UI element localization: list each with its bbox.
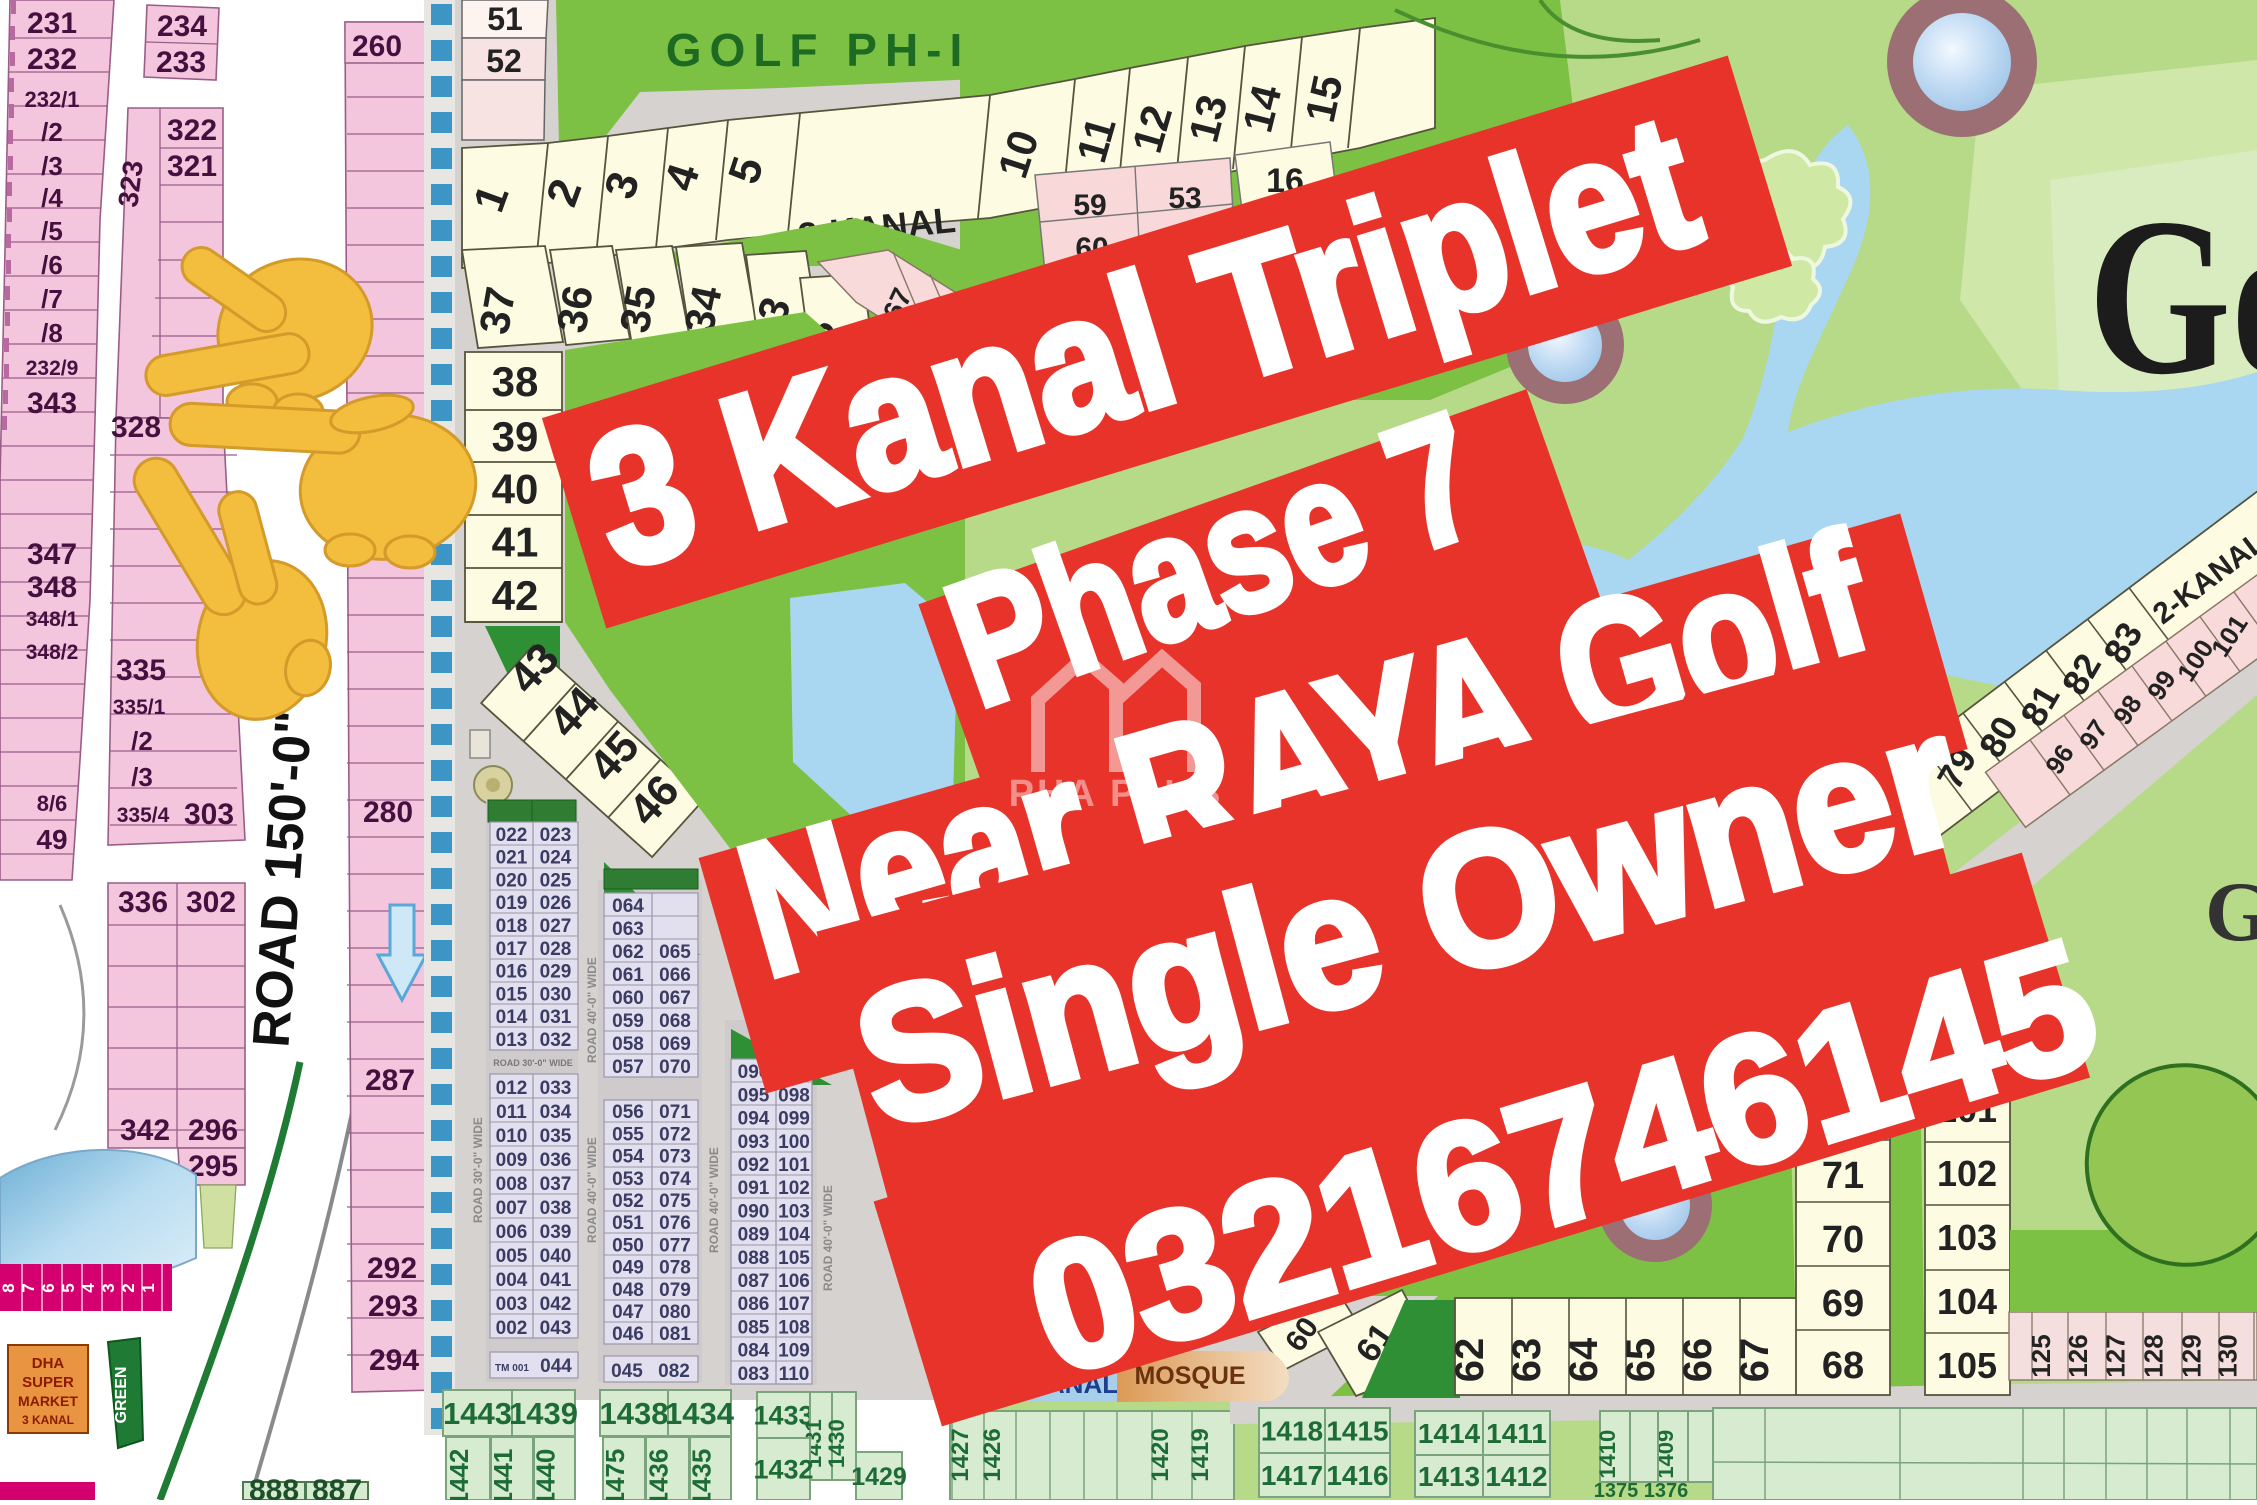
svg-text:1439: 1439 (509, 1396, 578, 1431)
svg-text:130: 130 (2213, 1334, 2243, 1377)
svg-text:335: 335 (116, 654, 166, 687)
svg-text:045: 045 (611, 1361, 643, 1382)
svg-text:046: 046 (612, 1324, 644, 1345)
svg-text:342: 342 (120, 1114, 170, 1147)
svg-text:082: 082 (658, 1361, 690, 1382)
svg-text:048: 048 (612, 1280, 644, 1301)
svg-text:084: 084 (738, 1341, 770, 1362)
svg-text:1427: 1427 (947, 1428, 974, 1481)
svg-text:1415: 1415 (1326, 1415, 1388, 1446)
svg-text:056: 056 (612, 1102, 644, 1123)
svg-text:347: 347 (27, 538, 77, 571)
svg-text:080: 080 (659, 1302, 691, 1323)
svg-text:/8: /8 (41, 318, 63, 348)
svg-text:020: 020 (496, 870, 528, 891)
svg-text:1429: 1429 (851, 1463, 907, 1491)
svg-text:8: 8 (0, 1283, 18, 1292)
svg-text:109: 109 (778, 1341, 810, 1362)
svg-text:260: 260 (352, 30, 402, 63)
svg-text:1417: 1417 (1261, 1460, 1323, 1491)
svg-text:232: 232 (27, 43, 77, 76)
svg-text:126: 126 (2063, 1334, 2093, 1377)
svg-text:1441: 1441 (488, 1449, 518, 1500)
svg-text:336: 336 (118, 886, 168, 919)
svg-text:085: 085 (738, 1317, 770, 1338)
svg-text:PHA PLUS: PHA PLUS (1009, 773, 1224, 815)
svg-text:42: 42 (492, 572, 539, 619)
svg-text:103: 103 (778, 1201, 810, 1222)
svg-text:335/1: 335/1 (113, 696, 166, 719)
svg-text:051: 051 (612, 1213, 644, 1234)
svg-text:033: 033 (540, 1078, 572, 1099)
svg-text:100: 100 (778, 1132, 810, 1153)
svg-text:322: 322 (167, 114, 217, 147)
svg-text:025: 025 (540, 870, 572, 891)
svg-text:49: 49 (36, 824, 67, 855)
svg-text:1420: 1420 (1147, 1428, 1174, 1481)
svg-text:093: 093 (738, 1132, 770, 1153)
svg-text:292: 292 (367, 1252, 417, 1285)
svg-text:ROAD 40'-0" WIDE: ROAD 40'-0" WIDE (585, 957, 599, 1063)
svg-text:017: 017 (496, 939, 528, 960)
svg-text:022: 022 (496, 825, 528, 846)
svg-text:078: 078 (659, 1258, 691, 1279)
svg-text:40: 40 (492, 466, 539, 513)
svg-text:072: 072 (659, 1124, 691, 1145)
svg-text:887: 887 (312, 1474, 362, 1500)
svg-text:081: 081 (659, 1324, 691, 1345)
svg-text:65: 65 (1619, 1338, 1663, 1383)
svg-text:ROAD 40'-0" WIDE: ROAD 40'-0" WIDE (707, 1147, 721, 1253)
svg-text:1475: 1475 (600, 1449, 630, 1500)
svg-text:MARKET: MARKET (18, 1393, 78, 1409)
svg-text:021: 021 (496, 848, 528, 869)
svg-text:105: 105 (1937, 1345, 1997, 1386)
svg-text:41: 41 (492, 519, 539, 566)
svg-text:1430: 1430 (824, 1419, 849, 1468)
svg-text:087: 087 (738, 1271, 770, 1292)
svg-text:1434: 1434 (665, 1396, 735, 1431)
svg-text:59: 59 (1073, 189, 1106, 222)
svg-text:010: 010 (496, 1126, 528, 1147)
svg-text:028: 028 (540, 939, 572, 960)
svg-text:69: 69 (1822, 1283, 1864, 1325)
svg-text:62: 62 (1448, 1338, 1492, 1383)
svg-text:293: 293 (368, 1290, 418, 1323)
svg-text:4: 4 (79, 1283, 98, 1293)
svg-text:15: 15 (1296, 71, 1352, 126)
svg-text:53: 53 (1168, 182, 1201, 215)
svg-text:38: 38 (492, 358, 539, 405)
svg-text:1411: 1411 (1486, 1418, 1547, 1449)
svg-text:5: 5 (59, 1283, 78, 1292)
svg-text:39: 39 (492, 413, 539, 460)
svg-text:1426: 1426 (979, 1428, 1006, 1481)
svg-text:/5: /5 (41, 216, 63, 246)
svg-text:036: 036 (540, 1150, 572, 1171)
svg-text:SUPER: SUPER (22, 1374, 74, 1391)
svg-text:091: 091 (738, 1178, 770, 1199)
svg-text:1: 1 (139, 1283, 158, 1292)
svg-text:003: 003 (496, 1294, 528, 1315)
svg-text:1412: 1412 (1485, 1461, 1547, 1492)
svg-text:1419: 1419 (1187, 1428, 1214, 1481)
svg-text:8/6: 8/6 (37, 791, 68, 816)
svg-text:1414: 1414 (1418, 1418, 1481, 1449)
svg-text:35: 35 (611, 282, 665, 336)
svg-text:061: 061 (612, 965, 644, 986)
svg-text:071: 071 (659, 1102, 691, 1123)
svg-text:103: 103 (1937, 1217, 1997, 1258)
svg-text:066: 066 (659, 965, 691, 986)
svg-text:1435: 1435 (687, 1449, 717, 1500)
svg-text:1443: 1443 (443, 1396, 512, 1431)
svg-text:GOLF PH-I: GOLF PH-I (666, 24, 971, 76)
svg-text:/6: /6 (41, 250, 63, 280)
svg-text:038: 038 (540, 1198, 572, 1219)
svg-text:042: 042 (540, 1294, 572, 1315)
svg-text:G: G (2205, 865, 2257, 959)
svg-text:110: 110 (779, 1364, 810, 1385)
svg-text:004: 004 (496, 1270, 528, 1291)
svg-text:062: 062 (612, 942, 644, 963)
svg-text:/2: /2 (41, 117, 63, 147)
svg-text:280: 280 (363, 796, 413, 829)
svg-text:014: 014 (496, 1007, 528, 1028)
svg-text:104: 104 (1937, 1281, 1997, 1322)
svg-text:ROAD 40'-0" WIDE: ROAD 40'-0" WIDE (821, 1185, 835, 1291)
svg-text:063: 063 (612, 919, 644, 940)
svg-text:128: 128 (2139, 1334, 2169, 1377)
svg-text:3: 3 (99, 1283, 118, 1292)
svg-text:075: 075 (659, 1191, 691, 1212)
svg-text:67: 67 (1733, 1338, 1777, 1383)
svg-text:050: 050 (612, 1235, 644, 1256)
svg-text:026: 026 (540, 893, 572, 914)
svg-text:/2: /2 (131, 726, 153, 756)
svg-text:ROAD 30'-0" WIDE: ROAD 30'-0" WIDE (493, 1058, 572, 1068)
svg-text:231: 231 (27, 7, 77, 40)
svg-text:1440: 1440 (531, 1449, 561, 1500)
svg-text:232/9: 232/9 (26, 357, 79, 380)
svg-text:092: 092 (738, 1155, 770, 1176)
svg-text:044: 044 (540, 1356, 572, 1377)
svg-text:041: 041 (540, 1270, 572, 1291)
svg-text:64: 64 (1562, 1337, 1606, 1382)
svg-text:077: 077 (659, 1235, 691, 1256)
svg-text:076: 076 (659, 1213, 691, 1234)
svg-text:018: 018 (496, 916, 528, 937)
svg-text:060: 060 (612, 988, 644, 1009)
svg-text:053: 053 (612, 1169, 644, 1190)
svg-text:/7: /7 (41, 284, 63, 314)
svg-text:101: 101 (778, 1155, 810, 1176)
svg-text:Go: Go (2088, 171, 2257, 421)
svg-text:102: 102 (1937, 1153, 1997, 1194)
svg-text:039: 039 (540, 1222, 572, 1243)
svg-text:232/1: 232/1 (24, 87, 79, 112)
svg-text:074: 074 (659, 1169, 691, 1190)
svg-text:/3: /3 (131, 762, 153, 792)
svg-text:011: 011 (496, 1102, 527, 1123)
svg-text:086: 086 (738, 1294, 770, 1315)
svg-text:296: 296 (188, 1114, 238, 1147)
svg-text:/3: /3 (41, 151, 63, 181)
svg-text:088: 088 (738, 1248, 770, 1269)
svg-text:233: 233 (156, 46, 206, 79)
svg-text:1375 1376: 1375 1376 (1594, 1480, 1689, 1500)
svg-text:069: 069 (659, 1034, 691, 1055)
svg-text:129: 129 (2177, 1334, 2207, 1377)
svg-text:/4: /4 (41, 183, 63, 213)
svg-text:006: 006 (496, 1222, 528, 1243)
svg-text:1432: 1432 (753, 1454, 813, 1484)
svg-text:059: 059 (612, 1011, 644, 1032)
svg-text:125: 125 (2026, 1334, 2056, 1377)
svg-text:888: 888 (249, 1474, 299, 1500)
svg-text:019: 019 (496, 893, 528, 914)
svg-text:037: 037 (540, 1174, 572, 1195)
svg-text:66: 66 (1676, 1338, 1720, 1383)
svg-text:1410: 1410 (1595, 1430, 1620, 1479)
svg-text:070: 070 (659, 1057, 691, 1078)
svg-text:040: 040 (540, 1246, 572, 1267)
svg-text:127: 127 (2101, 1334, 2131, 1377)
svg-text:105: 105 (778, 1248, 810, 1269)
svg-text:348: 348 (27, 571, 77, 604)
svg-text:ROAD 30'-0" WIDE: ROAD 30'-0" WIDE (471, 1117, 485, 1223)
svg-text:GREEN: GREEN (113, 1367, 130, 1424)
svg-text:ROAD 40'-0" WIDE: ROAD 40'-0" WIDE (585, 1137, 599, 1243)
svg-text:002: 002 (496, 1318, 528, 1339)
svg-text:1416: 1416 (1326, 1460, 1388, 1491)
svg-text:303: 303 (184, 798, 234, 831)
svg-text:032: 032 (540, 1030, 572, 1051)
svg-text:067: 067 (659, 988, 691, 1009)
svg-text:013: 013 (496, 1030, 528, 1051)
svg-text:055: 055 (612, 1124, 644, 1145)
svg-text:36: 36 (548, 282, 602, 336)
svg-text:51: 51 (487, 1, 523, 37)
svg-text:287: 287 (365, 1064, 415, 1097)
svg-text:068: 068 (659, 1011, 691, 1032)
svg-text:079: 079 (659, 1280, 691, 1301)
svg-text:043: 043 (540, 1318, 572, 1339)
svg-text:70: 70 (1822, 1219, 1864, 1261)
svg-text:012: 012 (496, 1078, 528, 1099)
svg-text:027: 027 (540, 916, 572, 937)
svg-text:1442: 1442 (444, 1449, 474, 1500)
svg-text:294: 294 (369, 1344, 419, 1377)
svg-text:104: 104 (778, 1225, 810, 1246)
svg-text:234: 234 (157, 10, 207, 43)
svg-text:057: 057 (612, 1057, 644, 1078)
svg-text:6: 6 (39, 1283, 58, 1292)
svg-text:023: 023 (540, 825, 572, 846)
svg-text:107: 107 (778, 1294, 810, 1315)
svg-text:016: 016 (496, 962, 528, 983)
svg-text:035: 035 (540, 1126, 572, 1147)
svg-text:049: 049 (612, 1258, 644, 1279)
svg-text:2: 2 (119, 1283, 138, 1292)
svg-text:37: 37 (470, 283, 524, 337)
svg-text:015: 015 (496, 984, 528, 1005)
svg-text:064: 064 (612, 896, 644, 917)
svg-text:005: 005 (496, 1246, 528, 1267)
svg-text:094: 094 (738, 1109, 770, 1130)
svg-text:52: 52 (486, 43, 522, 79)
svg-text:1438: 1438 (600, 1396, 669, 1431)
svg-text:073: 073 (659, 1147, 691, 1168)
svg-text:63: 63 (1505, 1338, 1549, 1383)
svg-text:058: 058 (612, 1034, 644, 1055)
svg-text:343: 343 (27, 387, 77, 420)
svg-text:034: 034 (540, 1102, 572, 1123)
svg-text:052: 052 (612, 1191, 644, 1212)
svg-text:054: 054 (612, 1147, 644, 1168)
svg-text:TM 001: TM 001 (495, 1363, 529, 1374)
svg-text:323: 323 (112, 159, 148, 209)
svg-text:108: 108 (778, 1317, 810, 1338)
svg-text:348/2: 348/2 (26, 641, 79, 664)
svg-text:031: 031 (540, 1007, 572, 1028)
svg-text:089: 089 (738, 1225, 770, 1246)
svg-text:009: 009 (496, 1150, 528, 1171)
svg-text:106: 106 (778, 1271, 810, 1292)
svg-text:1418: 1418 (1261, 1415, 1323, 1446)
svg-text:083: 083 (738, 1364, 770, 1385)
svg-text:1436: 1436 (644, 1449, 674, 1500)
svg-text:029: 029 (540, 962, 572, 983)
svg-text:302: 302 (186, 886, 236, 919)
svg-text:68: 68 (1822, 1345, 1864, 1387)
svg-text:007: 007 (496, 1198, 528, 1219)
svg-text:1413: 1413 (1418, 1461, 1480, 1492)
svg-text:7: 7 (19, 1283, 38, 1292)
svg-text:3 KANAL: 3 KANAL (22, 1413, 74, 1427)
svg-text:030: 030 (540, 984, 572, 1005)
svg-text:102: 102 (778, 1178, 810, 1199)
svg-text:047: 047 (612, 1302, 644, 1323)
svg-text:DHA: DHA (32, 1355, 65, 1372)
svg-text:335/4: 335/4 (117, 804, 170, 827)
svg-text:065: 065 (659, 942, 691, 963)
svg-text:099: 099 (778, 1109, 810, 1130)
svg-text:348/1: 348/1 (26, 608, 79, 631)
svg-text:321: 321 (167, 150, 217, 183)
svg-text:328: 328 (111, 411, 161, 444)
svg-text:090: 090 (738, 1201, 770, 1222)
svg-text:024: 024 (540, 848, 572, 869)
svg-text:008: 008 (496, 1174, 528, 1195)
